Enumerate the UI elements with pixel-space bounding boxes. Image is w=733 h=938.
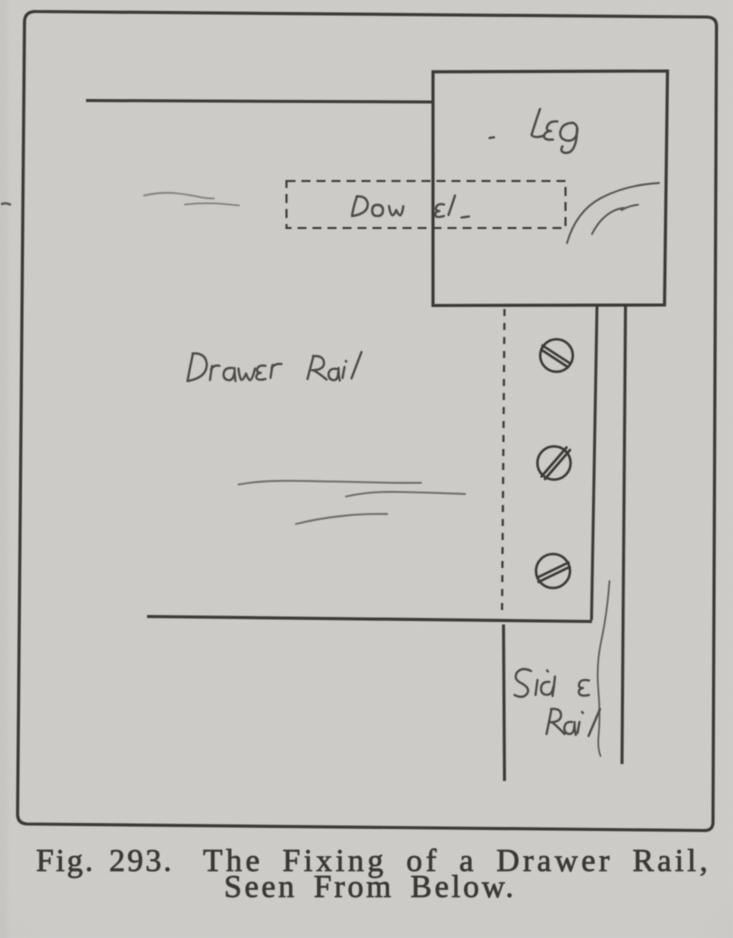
- svg-text:Fig. 293.: Fig. 293.: [36, 842, 174, 878]
- svg-text:Seen From Below.: Seen From Below.: [224, 868, 516, 904]
